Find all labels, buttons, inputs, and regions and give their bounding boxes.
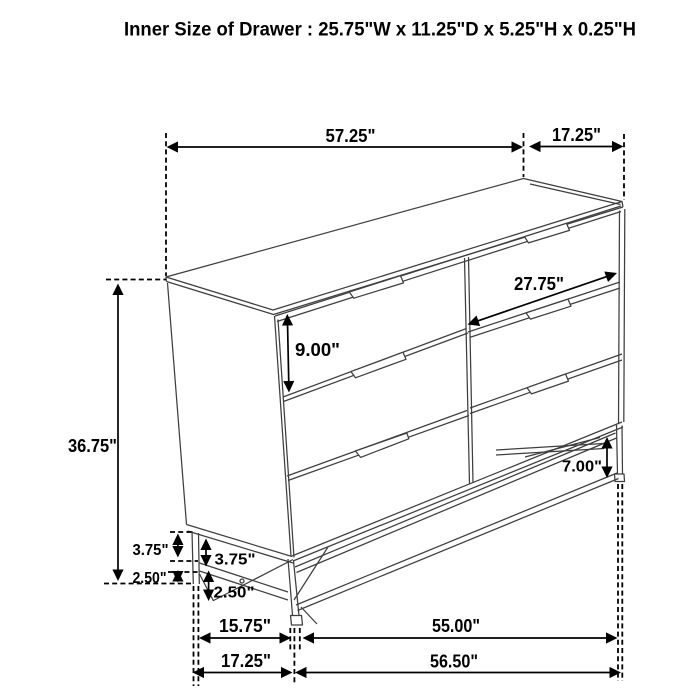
svg-text:2.50": 2.50"	[214, 585, 255, 602]
svg-text:9.00": 9.00"	[295, 339, 340, 360]
svg-text:3.75": 3.75"	[215, 552, 256, 569]
svg-text:Inner Size of Drawer : 25.75"W: Inner Size of Drawer : 25.75"W x 11.25"D…	[124, 20, 636, 41]
svg-text:15.75": 15.75"	[219, 615, 271, 636]
svg-text:55.00": 55.00"	[432, 615, 480, 636]
svg-text:3.75": 3.75"	[133, 542, 169, 559]
svg-text:7.00": 7.00"	[562, 459, 602, 476]
svg-text:27.75": 27.75"	[514, 273, 564, 294]
svg-text:57.25": 57.25"	[326, 125, 376, 146]
svg-text:36.75": 36.75"	[68, 435, 117, 456]
svg-text:17.25": 17.25"	[552, 124, 601, 145]
svg-text:17.25": 17.25"	[221, 650, 271, 671]
svg-text:56.50": 56.50"	[430, 651, 478, 672]
svg-text:2.50": 2.50"	[133, 570, 167, 587]
